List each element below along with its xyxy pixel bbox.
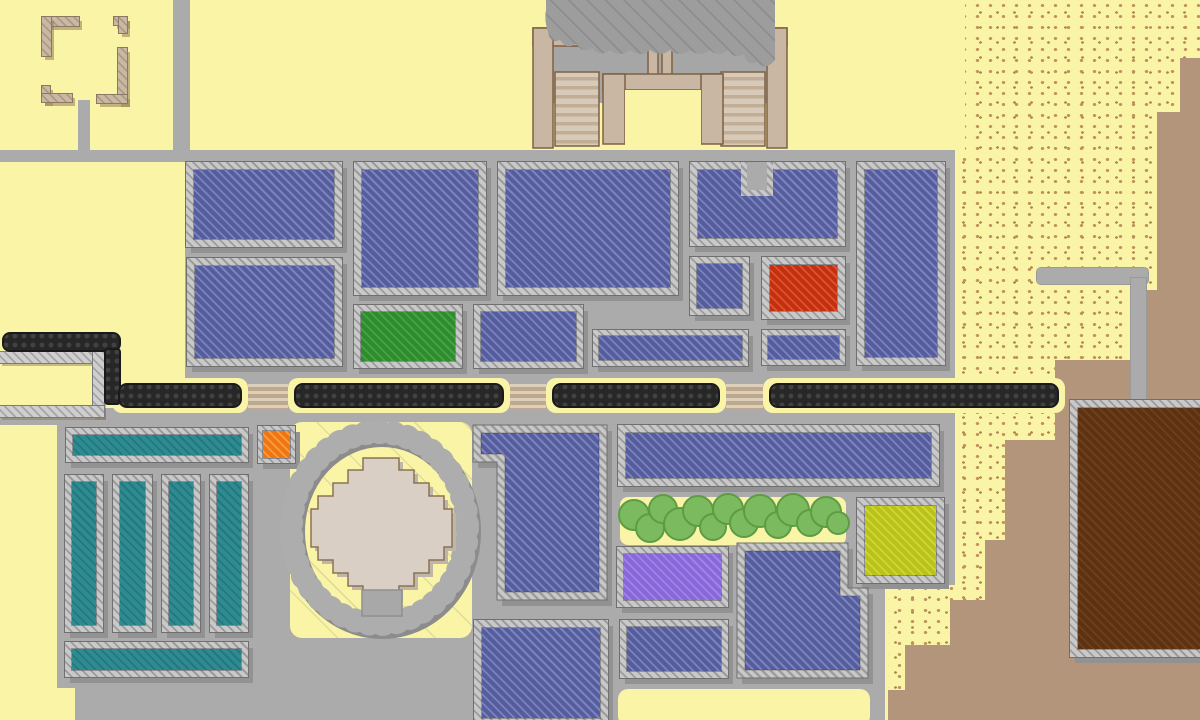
- field-teal-3-roof: [120, 482, 145, 625]
- temple-wall: [533, 28, 588, 46]
- ruin-wall-piece[interactable]: [42, 17, 51, 56]
- building-blue-3[interactable]: [354, 162, 486, 295]
- yard-wall-north[interactable]: [0, 352, 104, 363]
- building-blue-tall[interactable]: [857, 162, 945, 365]
- game-map: [0, 0, 1200, 720]
- building-brown-large-roof: [1078, 408, 1200, 649]
- building-blue-6[interactable]: [690, 257, 749, 315]
- building-blue-south-1[interactable]: [474, 620, 608, 720]
- building-blue-1[interactable]: [186, 162, 342, 247]
- field-teal-1-roof: [73, 435, 241, 455]
- ruin-wall-piece[interactable]: [42, 94, 72, 102]
- building-blue-2[interactable]: [187, 258, 342, 366]
- city-wall-segment-3[interactable]: [552, 383, 720, 408]
- building-orange-small-roof: [263, 431, 290, 458]
- building-blue-south-1-roof: [482, 628, 600, 718]
- building-blue-south-2-roof: [627, 627, 721, 671]
- road-east-vertical: [1131, 278, 1146, 406]
- building-blue-1-roof: [194, 170, 334, 239]
- building-blue-strip-2-roof: [768, 336, 839, 359]
- south-plaza-yard: [618, 689, 870, 720]
- yard-wall-south[interactable]: [0, 406, 104, 417]
- building-purple-roof: [624, 554, 721, 600]
- building-purple[interactable]: [617, 547, 728, 607]
- building-blue-notched-top-roof: [698, 170, 837, 238]
- temple-wall: [767, 28, 787, 148]
- building-brown-large[interactable]: [1070, 400, 1200, 657]
- circle-compound-yard: [290, 422, 472, 638]
- temple-wall: [732, 28, 787, 46]
- building-blue-strip-1-roof: [599, 336, 742, 360]
- field-teal-2[interactable]: [65, 475, 103, 632]
- road-north-vertical: [173, 0, 190, 150]
- temple-wall: [603, 74, 625, 144]
- field-teal-5[interactable]: [210, 475, 248, 632]
- field-teal-1[interactable]: [66, 428, 248, 462]
- field-teal-4-roof: [169, 482, 193, 625]
- field-teal-6[interactable]: [65, 642, 248, 677]
- cliff-rock: [545, 0, 775, 67]
- building-red-roof: [770, 265, 837, 311]
- building-red[interactable]: [762, 257, 845, 319]
- temple-stairs: [569, 18, 599, 46]
- temple-stairs: [555, 72, 599, 146]
- building-blue-6-roof: [697, 264, 742, 308]
- building-lime[interactable]: [857, 498, 944, 583]
- building-blue-5-roof: [506, 170, 670, 287]
- field-teal-6-roof: [72, 649, 241, 670]
- temple-stairs: [674, 18, 718, 46]
- building-blue-4-roof: [481, 312, 576, 361]
- temple-wall: [648, 0, 658, 78]
- field-teal-5-roof: [217, 482, 241, 625]
- temple-court: [553, 45, 768, 103]
- ruin-wall-piece[interactable]: [119, 17, 127, 33]
- ruin-wall-piece[interactable]: [97, 95, 127, 103]
- city-wall-segment-1[interactable]: [118, 383, 242, 408]
- wall-gate-3[interactable]: [726, 384, 763, 410]
- temple-wall: [603, 74, 723, 90]
- building-blue-3-roof: [362, 170, 478, 287]
- building-blue-wide[interactable]: [618, 425, 939, 486]
- grove-strip: [620, 497, 846, 545]
- temple-wall: [533, 28, 553, 148]
- building-blue-strip-1[interactable]: [593, 330, 748, 366]
- field-teal-3[interactable]: [113, 475, 152, 632]
- building-blue-south-2[interactable]: [620, 620, 728, 678]
- temple-wall: [701, 74, 723, 144]
- temple-wall: [662, 0, 672, 78]
- building-blue-tall-roof: [865, 170, 937, 357]
- building-orange-small[interactable]: [258, 426, 295, 463]
- temple-stairs: [602, 18, 646, 46]
- city-wall-west[interactable]: [2, 332, 121, 352]
- building-green-roof: [361, 312, 455, 361]
- building-blue-notched-top[interactable]: [690, 162, 845, 246]
- building-blue-4[interactable]: [474, 305, 583, 368]
- building-blue-2-roof: [195, 266, 334, 358]
- building-blue-wide-roof: [626, 433, 931, 478]
- temple-stairs: [721, 72, 765, 146]
- building-lime-roof: [865, 506, 936, 575]
- city-wall-segment-4[interactable]: [769, 383, 1059, 408]
- building-blue-5[interactable]: [498, 162, 678, 295]
- wall-gate-2[interactable]: [510, 384, 546, 410]
- city-wall-segment-2[interactable]: [294, 383, 504, 408]
- building-blue-strip-2[interactable]: [762, 330, 845, 365]
- road-ruin-stub: [78, 100, 90, 152]
- plaza-paving: [0, 150, 955, 162]
- field-teal-2-roof: [72, 482, 96, 625]
- wall-gate-1[interactable]: [248, 384, 288, 410]
- temple-stairs: [721, 18, 751, 46]
- field-teal-4[interactable]: [162, 475, 200, 632]
- temple-courtyard: [625, 90, 701, 146]
- building-green[interactable]: [354, 305, 462, 368]
- temple-complex[interactable]: [533, 0, 787, 148]
